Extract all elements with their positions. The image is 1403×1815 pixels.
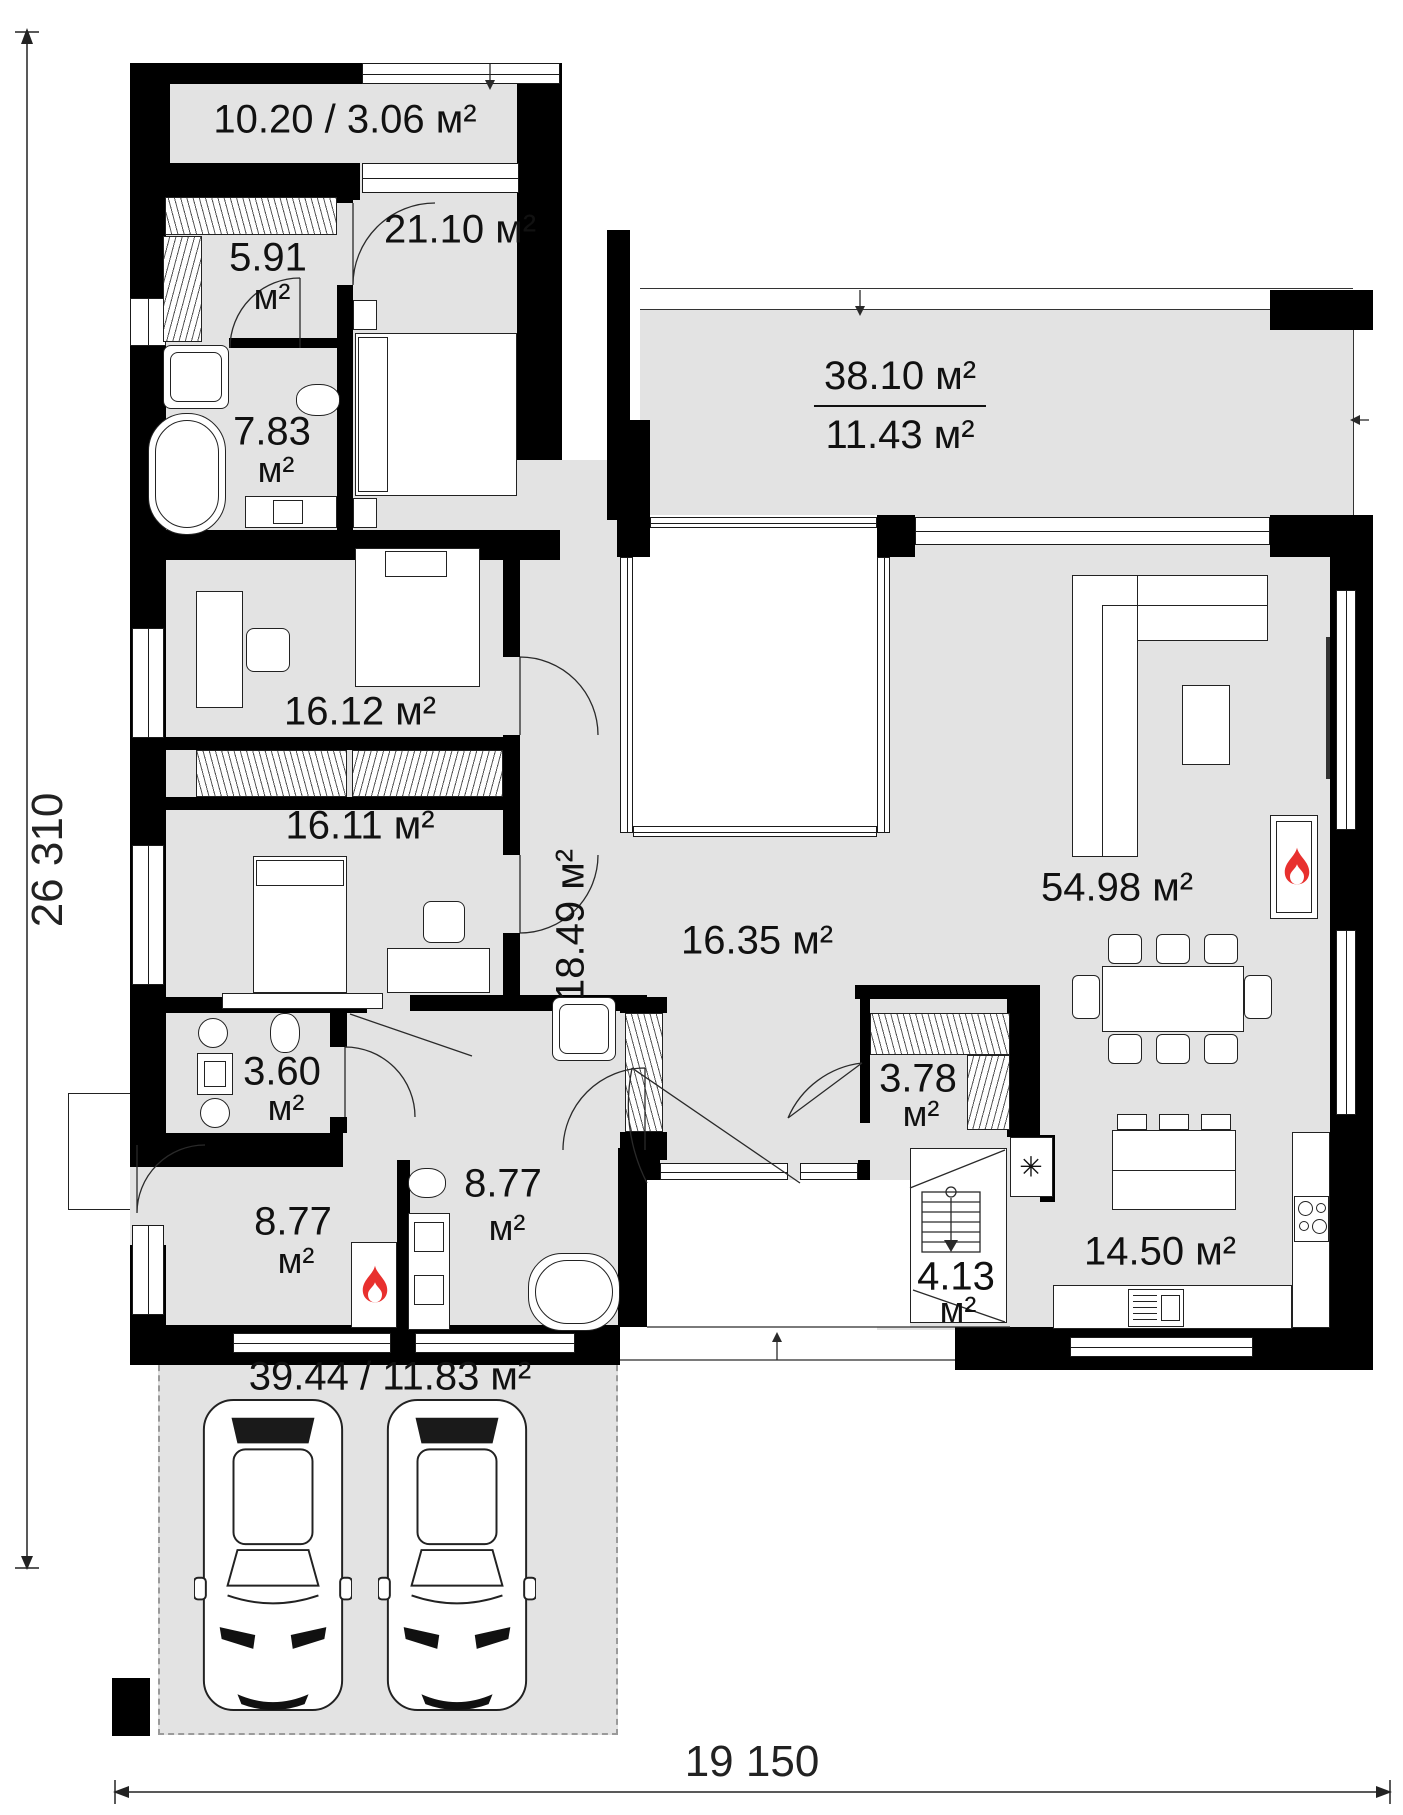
wall: [503, 560, 520, 1000]
chair: [1108, 934, 1142, 964]
door-opening: [503, 657, 520, 735]
chair: [423, 901, 465, 943]
label-terrace-top: 10.20 / 3.06 м²: [213, 98, 476, 143]
window: [132, 628, 164, 738]
sink: [198, 1018, 228, 1048]
dimension-bottom: 19 150: [685, 1737, 820, 1787]
porch-step-line: [620, 1327, 1010, 1360]
label-kitchen: 14.50 м²: [1084, 1230, 1236, 1275]
chair: [1244, 975, 1272, 1019]
dim-arrow: [1376, 1786, 1392, 1798]
window: [233, 1333, 391, 1353]
burner: [1298, 1201, 1313, 1216]
wall: [618, 1148, 647, 1327]
carport-post: [112, 1678, 150, 1736]
sink: [200, 1098, 230, 1128]
wall: [1270, 290, 1373, 330]
wall: [130, 530, 560, 560]
entrance-porch: [647, 1180, 910, 1327]
window: [1336, 930, 1356, 1115]
nightstand: [353, 498, 377, 528]
label-pantry-unit: м²: [940, 1289, 977, 1331]
label-closet-right-unit: м²: [903, 1093, 940, 1135]
label-bathroom-low-unit: м²: [489, 1207, 526, 1249]
label-bathroom-low: 8.77: [464, 1162, 542, 1207]
roof-eave-line: [640, 288, 1353, 310]
window: [362, 63, 560, 84]
wall: [607, 230, 630, 520]
wardrobe-hatch: [352, 750, 503, 797]
bench: [222, 993, 383, 1009]
chair: [1072, 975, 1100, 1019]
wall: [645, 1160, 660, 1180]
car: [378, 1390, 536, 1720]
fireplace-flame-icon: [1283, 843, 1311, 889]
chair: [246, 628, 290, 672]
burner: [1316, 1203, 1326, 1213]
window: [800, 1163, 858, 1180]
wall: [229, 338, 337, 348]
bed-pillow: [385, 551, 447, 577]
wall: [517, 63, 562, 460]
chair: [1156, 934, 1190, 964]
shower: [163, 345, 229, 409]
wall: [855, 985, 1010, 999]
terrace-right-total: 38.10 м²: [814, 354, 986, 407]
label-carport: 39.44 / 11.83 м²: [249, 1355, 532, 1400]
area-terrace-right: [640, 310, 1353, 515]
desk: [387, 948, 490, 993]
courtyard: [630, 515, 877, 833]
label-terrace-right: 38.10 м² 11.43 м²: [814, 354, 986, 458]
wall: [620, 1132, 667, 1160]
oven-vents: [1133, 1295, 1157, 1321]
chair: [1108, 1034, 1142, 1064]
wall: [858, 1160, 870, 1180]
stool: [1159, 1114, 1189, 1130]
window: [362, 163, 519, 193]
burner: [1299, 1221, 1309, 1231]
washing-machine-door: [204, 1061, 226, 1087]
wall: [877, 515, 915, 557]
wall: [130, 63, 365, 84]
sink: [414, 1222, 444, 1252]
bed-pillow: [358, 337, 388, 492]
toilet: [408, 1168, 446, 1198]
wall: [130, 63, 170, 235]
sofa-seat: [1102, 605, 1138, 857]
label-bathroom-top: 7.83: [233, 410, 311, 455]
boiler-flame-icon: [361, 1261, 389, 1307]
door-opening: [337, 203, 353, 285]
window: [132, 845, 164, 985]
dim-arrow: [21, 28, 33, 44]
wardrobe-hatch: [625, 1013, 663, 1132]
shower: [552, 997, 616, 1061]
window: [1336, 590, 1356, 830]
wall: [620, 997, 667, 1013]
wall: [130, 163, 360, 200]
entry-arrow-up: [772, 1332, 782, 1342]
oven-door: [1161, 1295, 1180, 1321]
fridge-snowflake-icon: ✳: [1019, 1151, 1042, 1184]
wardrobe-hatch: [163, 236, 202, 342]
kitchen-island: [1112, 1130, 1236, 1210]
label-bedroom-low: 16.11 м²: [285, 804, 434, 849]
wall: [1007, 985, 1040, 1137]
label-boiler-unit: м²: [278, 1240, 315, 1282]
window: [660, 1163, 788, 1180]
floor-plan: ✳: [0, 0, 1403, 1815]
sink: [414, 1275, 444, 1305]
window: [877, 557, 890, 833]
dining-table: [1102, 966, 1244, 1032]
wardrobe-hatch: [870, 1013, 1010, 1055]
wardrobe-hatch: [196, 750, 347, 797]
wardrobe-hatch: [165, 197, 337, 235]
window: [633, 826, 877, 837]
bathtub: [148, 413, 226, 535]
window: [415, 1333, 575, 1353]
stool: [1201, 1114, 1231, 1130]
nightstand: [353, 300, 377, 330]
toilet: [270, 1013, 300, 1053]
window: [915, 517, 1270, 545]
coffee-table: [1182, 685, 1230, 765]
bed-pillow: [256, 860, 344, 886]
label-hall-center: 16.35 м²: [681, 919, 833, 964]
car: [194, 1390, 352, 1720]
tv: [1326, 637, 1330, 779]
wall: [860, 997, 870, 1123]
label-bedroom-master: 21.10 м²: [384, 208, 536, 253]
bathtub: [528, 1253, 620, 1331]
wall: [166, 737, 503, 750]
window: [620, 557, 633, 833]
window: [132, 1225, 164, 1315]
label-living: 54.98 м²: [1041, 866, 1193, 911]
door-opening: [330, 1047, 347, 1117]
terrace-edge-line: [1353, 310, 1354, 515]
label-bathroom-top-unit: м²: [258, 449, 295, 491]
chair: [1204, 1034, 1238, 1064]
dim-arrow: [113, 1786, 129, 1798]
window: [1070, 1337, 1253, 1357]
window: [650, 517, 877, 528]
sink: [273, 500, 303, 524]
wall: [130, 1133, 343, 1167]
label-wc-unit: м²: [268, 1087, 305, 1129]
desk: [196, 591, 243, 708]
label-hallway: 18.49 м²: [549, 849, 594, 1001]
window: [130, 298, 166, 346]
label-closet-top-unit: м²: [254, 276, 291, 318]
chair: [1204, 934, 1238, 964]
stool: [1117, 1114, 1147, 1130]
label-closet-top: 5.91: [229, 236, 307, 281]
burner: [1312, 1219, 1327, 1234]
door-opening: [503, 855, 520, 933]
terrace-right-covered: 11.43 м²: [814, 407, 986, 458]
label-bedroom-mid: 16.12 м²: [284, 690, 436, 735]
wardrobe-hatch: [967, 1055, 1010, 1130]
label-boiler: 8.77: [254, 1200, 332, 1245]
dimension-left: 26 310: [23, 793, 73, 928]
dim-arrow: [21, 1556, 33, 1570]
chair: [1156, 1034, 1190, 1064]
